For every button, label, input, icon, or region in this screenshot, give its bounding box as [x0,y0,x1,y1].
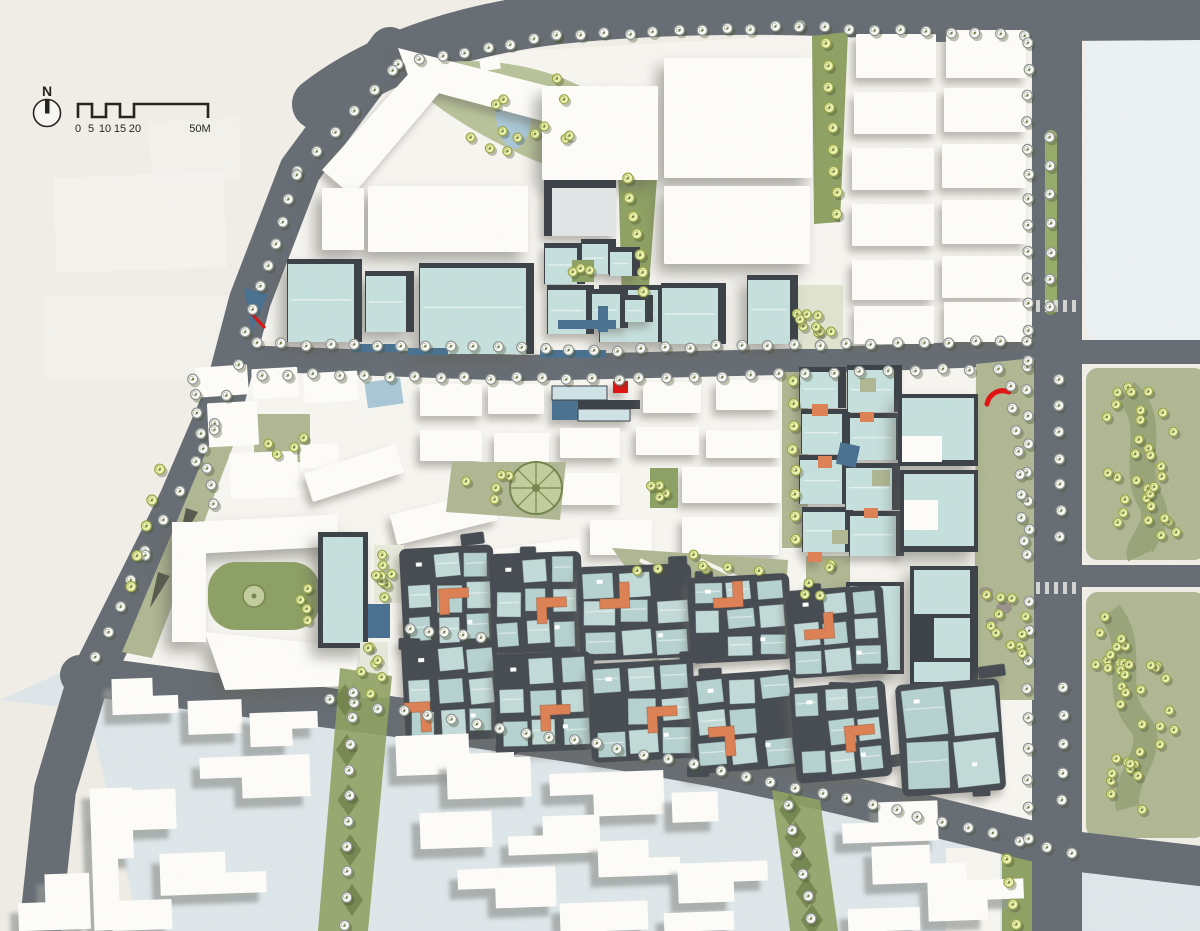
residential-cluster [894,663,1015,802]
scale-tick-15: 15 [114,123,126,135]
housing-roof [698,741,727,766]
campus-bar [802,414,842,454]
housing-roof [760,674,791,699]
context-building [560,900,649,931]
housing-roof [561,656,586,682]
industrial-hall [322,188,364,250]
warehouse-slab [852,260,934,300]
campus-orange-link [812,404,828,416]
housing-roof [466,581,492,608]
crosswalk-stripe [1063,300,1067,312]
office-slab [494,433,549,462]
crosswalk-stripe [1036,300,1040,312]
campus-hall-b [910,566,978,686]
housing-roof [552,556,573,582]
context-building [446,757,531,800]
teal-hall [366,276,406,332]
scale-tick-10: 10 [99,123,111,135]
masterplan-canvas: N 0 5 10 15 20 50M [0,0,1200,931]
campus-orange-link [860,412,874,422]
context-building [848,907,921,931]
housing-roof [659,664,688,690]
housing-roof [466,647,494,673]
housing-roof [582,573,614,600]
housing-roof [497,592,521,617]
housing-roof [662,727,690,754]
crosswalk-stripe [1072,300,1076,312]
linear-teal-hall [318,532,368,648]
campus-u-building-north [898,394,978,466]
scale-tick-0: 0 [75,123,81,135]
campus-pocket-green [832,530,848,544]
campus-orange-link [864,508,878,518]
industrial-hall [664,58,812,178]
warehouse-slab [942,200,1026,244]
office-slab [420,430,482,461]
reflecting-pool [368,604,390,638]
housing-roof [830,749,856,774]
housing-roof [901,686,949,739]
context-building [111,899,172,931]
housing-roof [802,750,827,773]
housing-roof [438,678,464,704]
housing-roof [585,632,616,655]
scale-end-label: 50M [189,123,210,135]
industrial-hall [664,186,810,264]
residential-cluster [488,544,584,663]
housing-roof [759,604,786,628]
housing-roof [657,600,689,624]
office-slab [420,384,482,416]
crosswalk-stripe [1063,582,1067,594]
housing-roof [854,618,879,640]
housing-roof [795,651,822,675]
housing-roof [433,552,460,578]
office-slab [636,427,699,455]
feature-circle-tree [510,462,562,514]
campus-pocket-green [872,470,890,486]
campus-bar [850,516,896,556]
housing-roof [628,666,656,691]
crosswalk-stripe [1054,582,1058,594]
housing-roof [469,677,495,705]
scale-tick-5: 5 [88,123,94,135]
office-slab [560,473,620,505]
housing-roof [824,647,852,673]
context-building [671,791,718,823]
housing-roof [852,590,876,614]
crosswalk-stripe [1045,582,1049,594]
warehouse-slab [942,256,1026,298]
housing-roof [496,622,519,647]
courtyard-circle-tree [243,585,265,607]
housing-roof [408,679,431,703]
housing-roof [727,607,756,629]
housing-roof [522,559,547,583]
housing-roof [950,685,999,737]
scale-tick-20: 20 [129,123,141,135]
office-slab [682,517,779,555]
campus-orange-link [818,456,832,468]
masterplan-stage: N 0 5 10 15 20 50M [0,0,1200,931]
warehouse-slab [854,92,936,134]
housing-roof [438,646,465,671]
compass-needle [45,100,50,114]
warehouse-slab [944,88,1026,132]
campus-u-building-south [900,470,978,552]
housing-roof [794,693,818,717]
housing-roof [554,621,576,647]
office-slab [682,467,781,503]
gray-framed-hall [544,180,616,236]
water-channel [598,306,608,332]
warehouse-slab [942,144,1026,188]
warehouse-slab [852,204,934,246]
context-building [419,811,492,849]
housing-roof [765,737,795,766]
context-building [187,699,242,735]
housing-roof [728,636,753,656]
housing-roof [408,584,432,608]
northeast-pale-block [1085,30,1200,340]
office-slab [560,428,620,458]
crosswalk-stripe [1072,582,1076,594]
housing-roof [757,580,784,600]
housing-roof [859,745,883,770]
campus-pocket-green [860,378,876,392]
residential-cluster [565,556,694,665]
housing-roof [621,629,652,656]
village-pond [364,378,403,409]
housing-roof [855,687,879,712]
village-building [229,451,299,499]
north-label: N [42,83,52,99]
housing-roof [463,553,487,577]
industrial-hall [368,186,528,252]
housing-roof [729,679,756,704]
residential-cluster [398,633,502,748]
warehouse-slab [944,302,1026,342]
office-slab [706,430,780,458]
teal-hall [662,288,718,344]
context-building [664,911,735,931]
office-slab [488,384,544,414]
teal-hall [288,264,354,342]
residential-cluster [586,650,708,763]
housing-roof [499,689,524,714]
housing-roof [695,610,719,633]
crosswalk-stripe [1036,582,1040,594]
warehouse-slab [852,148,934,190]
housing-roof [528,657,554,684]
housing-roof [906,741,950,790]
office-slab [643,382,701,413]
housing-roof [825,688,848,711]
warehouse-slab [856,34,936,78]
teal-hall [748,280,790,344]
campus-orange-link [808,552,822,562]
landmark-building [552,381,640,421]
